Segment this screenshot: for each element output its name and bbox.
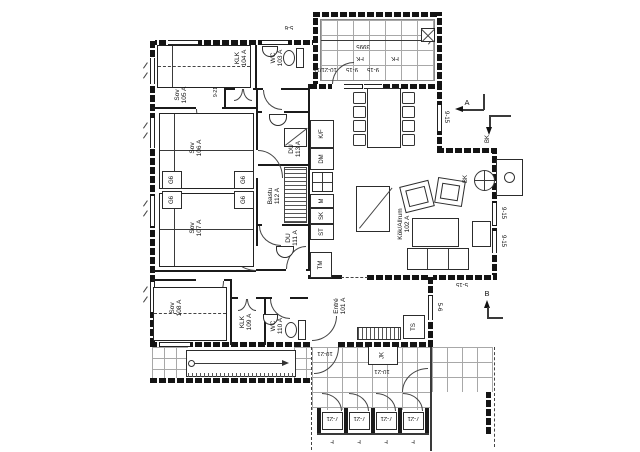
drying-cabinet [403,315,425,339]
deck-wall [313,12,442,17]
toilet-tank [298,320,306,340]
interior-wall [282,224,310,226]
interior-wall [152,279,196,281]
terrace-edge-left [311,347,312,450]
sofa-cushion-divider [448,249,449,269]
window [344,84,362,89]
bed-pillow-line [172,46,173,87]
fridge-freezer [310,120,334,148]
section-bk-line [489,115,511,117]
section-a-line [462,109,484,111]
sink-divider [313,182,332,183]
exterior-wall [338,342,433,347]
folding-door-post [344,408,348,435]
panel-letter: F [407,437,419,445]
window-tick [143,286,148,292]
door-arc [263,90,282,110]
dining-chair [402,92,415,104]
dining-chair [402,120,415,132]
entry-bench [357,327,401,340]
pantry-unit [310,208,334,224]
window [492,231,497,253]
window-size-label: 9-15 [441,107,451,127]
dining-chair [353,120,366,132]
washing-machine [310,252,332,278]
toilet-icon [283,50,295,66]
folding-door-post [317,408,321,435]
panel-letter: F [353,437,365,445]
section-a-arrow-icon [455,106,463,112]
folding-door-post [398,408,402,435]
panel-letter: F [380,437,392,445]
deck-dimension-line [321,40,432,41]
fireplace-cross [484,171,485,190]
dining-chair [353,106,366,118]
terrace-divider [430,347,432,451]
window [437,105,442,131]
interior-wall [256,88,258,150]
window-tick [143,62,148,68]
interior-wall [230,297,238,299]
interior-wall [256,178,258,246]
deck-wall [437,12,442,88]
interior-wall [253,88,263,90]
section-a-label: A [462,99,472,108]
floor-plan: 7-21 7-21 7-21 7-21 F F F F JK 10-21 10-… [0,0,640,452]
interior-wall [255,45,257,89]
section-b-label: B [482,290,492,299]
toilet-icon [285,322,297,338]
window [150,118,155,148]
window-size-label: 5-15 [450,279,474,288]
section-b-line [487,317,503,319]
window [262,40,288,45]
dining-chair [402,106,415,118]
door-arc [258,150,283,178]
left-terrace-edge [150,378,312,383]
dining-chair [353,134,366,146]
section-bk-arrow-icon [486,127,492,135]
window [160,342,190,347]
dimension-label: 5-6 [276,22,302,31]
exterior-wall [437,148,497,153]
bifold-door-arc [238,299,247,311]
sofa-cushion-divider [427,249,428,269]
dining-chair [353,92,366,104]
window-size-label: 9-15 [498,231,508,251]
window [150,58,155,84]
coffee-table [412,218,459,247]
sink-icon [262,46,278,57]
entry-door-arc [312,316,337,341]
ramp-edge-hatch [188,373,294,377]
folding-door-panel [403,412,424,430]
interior-wall [230,279,232,345]
wardrobe [234,191,254,209]
left-terrace-tiles [152,347,188,380]
window-size-label: 5-6 [434,297,444,317]
side-table [472,221,491,247]
window-tick [143,132,148,138]
room-label-bastu112: Bastu112 A [266,183,282,209]
folding-door-panel [376,412,397,430]
bifold-door-arc [234,89,243,101]
interior-wall [281,88,308,90]
bed-centerline [154,313,226,314]
wardrobe [162,171,182,189]
bed [153,287,227,341]
toilet-tank [296,48,304,68]
window-tick [143,210,148,216]
sink-icon [263,314,278,325]
folding-door-panel [349,412,370,430]
window [428,296,433,320]
interior-wall [308,84,310,269]
ramp-arrow-head [282,360,289,366]
terrace-post-wall [486,392,491,434]
panel-letter: F [326,437,338,445]
folding-door-post [425,408,429,435]
wall-opening-dashed [341,277,368,278]
bifold-door-arc [243,89,252,101]
dishwasher [310,148,334,170]
interior-wall [256,269,286,271]
bifold-door-arc [247,299,256,311]
armchair-seat [440,183,460,202]
interior-wall [222,107,256,109]
exterior-wall [310,84,332,89]
microwave-unit [310,194,334,208]
chimney-flue [504,172,515,183]
window-tick [143,200,148,206]
door-arc [259,226,281,246]
dining-chair [402,134,415,146]
terrace-edge-right [494,347,495,447]
wardrobe [234,171,254,189]
folding-door-panel [322,412,343,430]
folding-door-post [371,408,375,435]
jk-unit [368,346,398,365]
left-terrace-tiles2 [294,347,311,380]
interior-wall [284,111,310,113]
window-size-label: 9-15 [498,203,508,223]
sauna-benches [284,167,307,223]
wardrobe [162,191,182,209]
window [150,196,155,226]
interior-wall [290,297,308,299]
window-tick [143,296,148,302]
sink-icon [269,114,287,126]
window-tick [143,72,148,78]
cleaning-unit [310,224,334,240]
window-tick [143,122,148,128]
ramp-arrow [194,363,282,364]
dining-table [367,88,401,148]
interior-wall [152,270,256,272]
window [492,203,497,225]
folding-door-sill [317,433,429,435]
interior-wall [152,107,196,109]
section-a-line [483,94,485,110]
interior-wall [258,111,262,113]
sofa [407,248,469,270]
room-label-klk109: KLK109 A [238,309,254,335]
deck-wall [313,12,318,88]
